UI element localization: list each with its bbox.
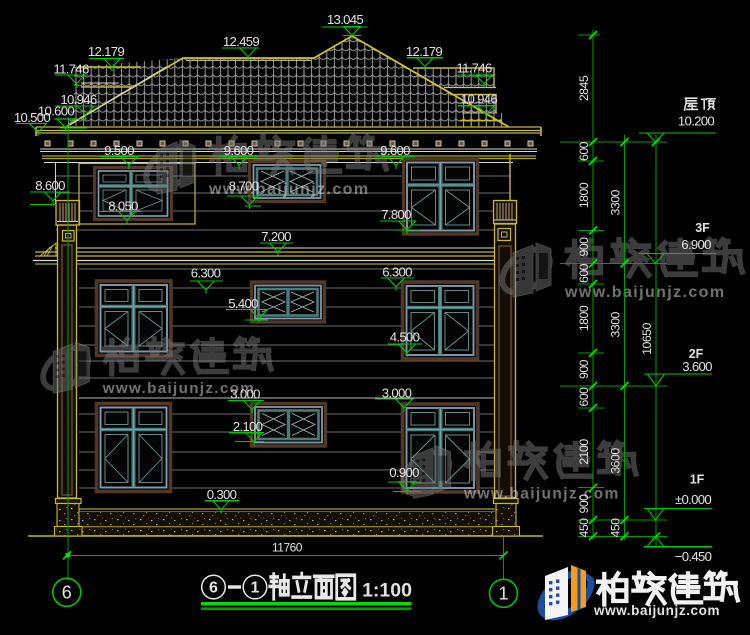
svg-text:12.459: 12.459 xyxy=(223,34,260,49)
svg-text:900: 900 xyxy=(577,237,591,257)
svg-text:12.179: 12.179 xyxy=(406,44,443,59)
svg-text:600: 600 xyxy=(577,141,591,161)
svg-text:10650: 10650 xyxy=(640,322,654,354)
svg-text:1800: 1800 xyxy=(577,182,591,208)
svg-text:2100: 2100 xyxy=(577,439,591,465)
svg-text:450: 450 xyxy=(577,518,591,538)
svg-text:3F: 3F xyxy=(695,221,710,235)
svg-text:1: 1 xyxy=(251,580,260,597)
svg-text:6: 6 xyxy=(209,580,218,597)
svg-text:6: 6 xyxy=(62,583,72,603)
svg-text:0.900: 0.900 xyxy=(389,465,419,480)
svg-text:11.746: 11.746 xyxy=(53,62,89,77)
svg-text:±0.000: ±0.000 xyxy=(675,492,711,507)
svg-text:10.500: 10.500 xyxy=(14,110,51,125)
svg-text:0.300: 0.300 xyxy=(207,487,237,502)
svg-text:9.500: 9.500 xyxy=(104,143,134,158)
svg-text:2.100: 2.100 xyxy=(233,419,263,434)
svg-text:9.600: 9.600 xyxy=(380,143,410,158)
svg-text:600: 600 xyxy=(577,387,591,407)
svg-text:−0.450: −0.450 xyxy=(675,549,712,564)
svg-text:450: 450 xyxy=(609,518,623,538)
svg-text:3.000: 3.000 xyxy=(382,386,412,401)
svg-text:4.500: 4.500 xyxy=(390,330,420,345)
svg-text:900: 900 xyxy=(577,494,591,514)
svg-text:1800: 1800 xyxy=(577,305,591,331)
svg-text:13.045: 13.045 xyxy=(327,12,364,27)
svg-text:12.179: 12.179 xyxy=(88,44,125,59)
svg-text:2845: 2845 xyxy=(577,75,591,101)
svg-text:6.300: 6.300 xyxy=(191,266,221,281)
svg-text:9.600: 9.600 xyxy=(224,143,254,158)
svg-text:8.050: 8.050 xyxy=(108,199,138,214)
svg-text:8.700: 8.700 xyxy=(229,179,259,194)
svg-text:3.600: 3.600 xyxy=(682,359,712,374)
svg-text:600: 600 xyxy=(577,263,591,283)
svg-text:6.300: 6.300 xyxy=(382,265,412,280)
svg-text:7.800: 7.800 xyxy=(381,207,411,222)
svg-text:10.946: 10.946 xyxy=(461,92,498,107)
svg-text:7.200: 7.200 xyxy=(261,229,291,244)
svg-text:3300: 3300 xyxy=(609,189,623,215)
svg-text:3300: 3300 xyxy=(609,311,623,337)
svg-text:1: 1 xyxy=(498,584,508,604)
svg-text:www.baijunjz.com: www.baijunjz.com xyxy=(593,603,720,618)
svg-text:8.600: 8.600 xyxy=(35,178,65,193)
svg-text:10.200: 10.200 xyxy=(678,114,715,129)
svg-text:6.900: 6.900 xyxy=(681,237,711,252)
svg-text:900: 900 xyxy=(577,359,591,379)
svg-text:1F: 1F xyxy=(690,473,705,487)
svg-text:11.746: 11.746 xyxy=(456,61,492,76)
svg-text:3600: 3600 xyxy=(609,448,623,474)
svg-text:5.400: 5.400 xyxy=(228,296,258,311)
svg-text:11760: 11760 xyxy=(272,541,303,555)
svg-text:1:100: 1:100 xyxy=(362,580,412,602)
svg-text:3.000: 3.000 xyxy=(230,387,260,402)
